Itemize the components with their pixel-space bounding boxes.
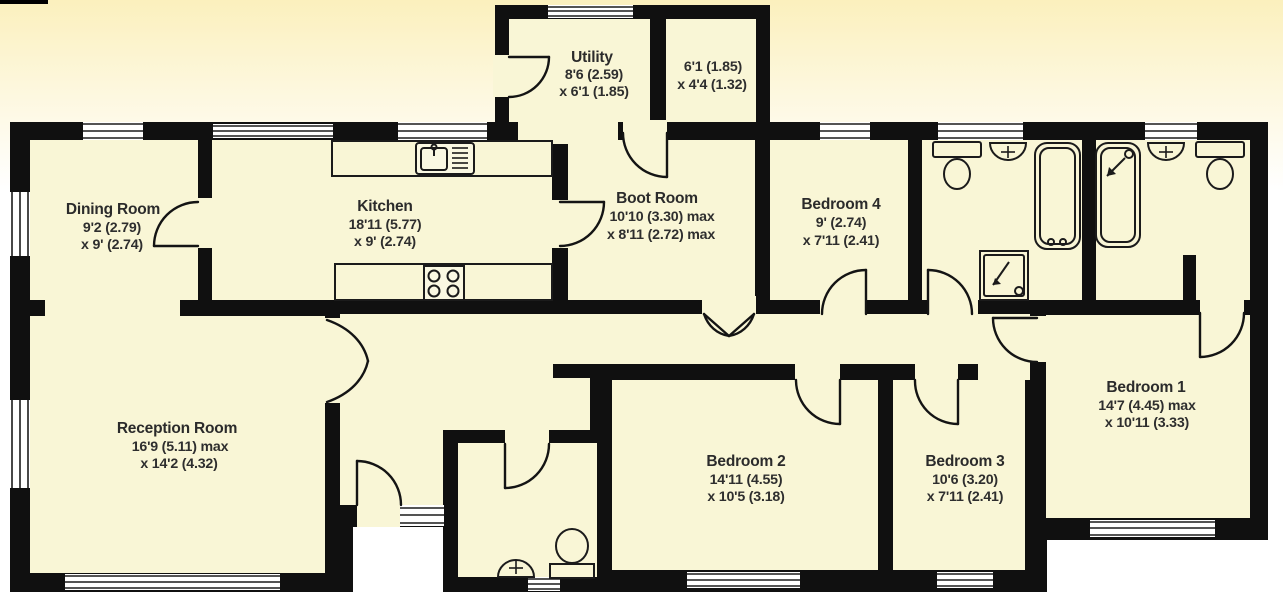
svg-text:Bedroom 4: Bedroom 4 [801,196,881,213]
svg-text:x 9' (2.74): x 9' (2.74) [354,234,416,250]
window [548,5,633,18]
window [938,122,1023,140]
window [820,122,870,140]
window [213,124,333,138]
hob-icon [424,266,464,300]
kitchen-sink-icon [416,143,474,174]
svg-text:x 10'5 (3.18): x 10'5 (3.18) [707,489,785,505]
window [65,574,280,590]
svg-text:Bedroom 1: Bedroom 1 [1106,379,1186,396]
svg-text:14'11 (4.55): 14'11 (4.55) [710,472,783,488]
window [937,572,993,588]
top-left-mark [0,0,48,4]
window [528,577,560,591]
svg-text:Reception Room: Reception Room [117,420,237,437]
svg-text:Utility: Utility [571,49,613,66]
svg-text:x 4'4 (1.32): x 4'4 (1.32) [677,77,747,93]
window [10,400,30,488]
svg-text:Dining Room: Dining Room [66,201,160,218]
svg-text:x 8'11 (2.72) max: x 8'11 (2.72) max [607,227,715,243]
svg-text:16'9 (5.11) max: 16'9 (5.11) max [132,439,229,455]
svg-text:9' (2.74): 9' (2.74) [816,215,867,231]
window [687,572,800,588]
room-wc [458,443,597,577]
front-porch [353,527,443,592]
window [10,192,30,256]
svg-text:10'6 (3.20): 10'6 (3.20) [932,472,998,488]
window [1090,520,1215,537]
label-bedroom1: Bedroom 1 14'7 (4.45) max x 10'11 (3.33) [1098,379,1196,431]
label-bedroom3: Bedroom 3 10'6 (3.20) x 7'11 (2.41) [925,453,1005,505]
floor-plan-page: Utility 8'6 (2.59) x 6'1 (1.85) 6'1 (1.8… [0,0,1283,600]
svg-text:6'1 (1.85): 6'1 (1.85) [684,59,743,75]
svg-text:Bedroom 2: Bedroom 2 [706,453,785,470]
window [1145,122,1197,140]
svg-text:x 7'11 (2.41): x 7'11 (2.41) [927,489,1004,505]
svg-text:x 7'11 (2.41): x 7'11 (2.41) [803,233,880,249]
svg-text:8'6 (2.59): 8'6 (2.59) [565,67,624,83]
svg-text:x 14'2 (4.32): x 14'2 (4.32) [140,456,218,472]
svg-text:Boot Room: Boot Room [616,190,698,207]
label-kitchen: Kitchen 18'11 (5.77) x 9' (2.74) [349,198,422,250]
svg-text:18'11 (5.77): 18'11 (5.77) [349,217,422,233]
svg-text:Bedroom 3: Bedroom 3 [925,453,1005,470]
svg-text:Kitchen: Kitchen [357,198,412,215]
svg-text:14'7 (4.45) max: 14'7 (4.45) max [1098,398,1196,414]
label-bedroom2: Bedroom 2 14'11 (4.55) x 10'5 (3.18) [706,453,785,505]
floor-plan-svg: Utility 8'6 (2.59) x 6'1 (1.85) 6'1 (1.8… [0,0,1283,600]
svg-text:x 6'1 (1.85): x 6'1 (1.85) [559,84,629,100]
svg-text:10'10 (3.30) max: 10'10 (3.30) max [609,209,714,225]
svg-text:x 9' (2.74): x 9' (2.74) [81,237,143,253]
svg-text:x 10'11 (3.33): x 10'11 (3.33) [1105,415,1190,431]
window [398,122,487,140]
svg-text:9'2 (2.79): 9'2 (2.79) [83,220,142,236]
room-bathroom [922,140,1082,300]
window [400,505,444,526]
window [83,122,143,140]
